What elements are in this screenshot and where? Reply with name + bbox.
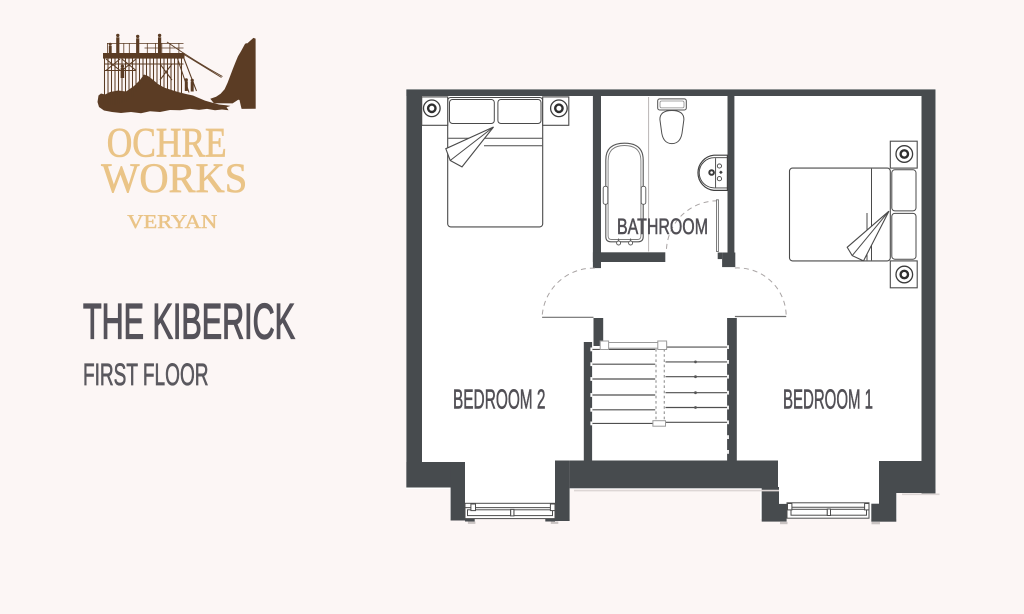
- svg-text:FIRST FLOOR: FIRST FLOOR: [83, 357, 209, 392]
- svg-text:BATHROOM: BATHROOM: [617, 214, 708, 239]
- svg-text:BEDROOM 1: BEDROOM 1: [783, 384, 873, 415]
- svg-text:BEDROOM 2: BEDROOM 2: [453, 384, 546, 415]
- svg-text:VERYAN: VERYAN: [127, 212, 217, 233]
- svg-text:THE KIBERICK: THE KIBERICK: [83, 293, 295, 349]
- svg-text:WORKS: WORKS: [101, 156, 247, 202]
